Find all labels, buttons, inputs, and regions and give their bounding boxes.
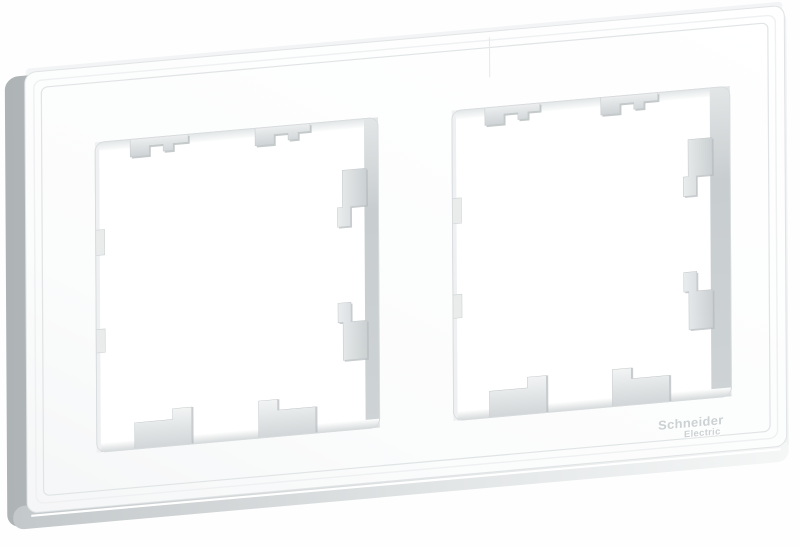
frame-render: Schneider Electric Schneider Electric xyxy=(0,0,800,547)
left-opening-wall-right xyxy=(364,117,380,428)
left-opening-interior xyxy=(95,117,380,452)
left-opening-nub-lower xyxy=(96,329,105,353)
product-photo: Schneider Electric Schneider Electric xyxy=(0,0,800,547)
right-opening-wall-right xyxy=(710,86,732,398)
right-opening-nub-upper xyxy=(452,198,461,224)
left-opening-nub-upper xyxy=(96,229,105,255)
right-opening-interior xyxy=(452,86,732,421)
right-opening-nub-lower xyxy=(453,294,462,318)
